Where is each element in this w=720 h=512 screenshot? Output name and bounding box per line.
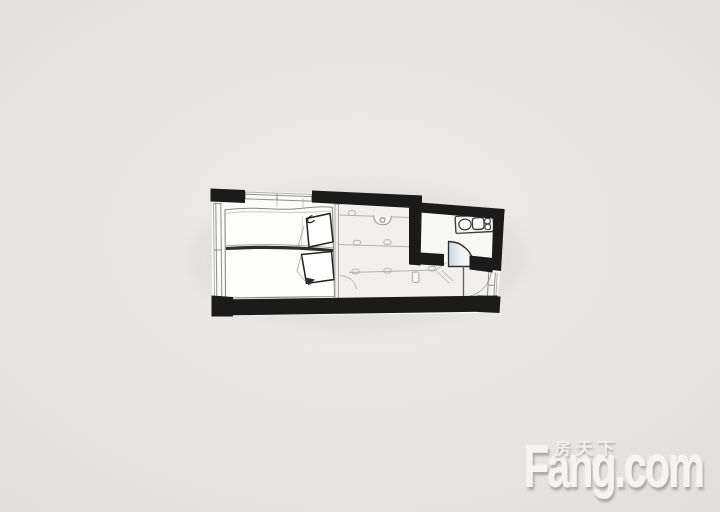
wall-bottom-left-corner	[212, 296, 234, 317]
double-bed	[225, 207, 335, 298]
wall-bath-bottom-right	[470, 256, 494, 273]
floorplan-photo: 房天下 Fang.com	[0, 0, 720, 512]
floor-plan	[0, 0, 720, 512]
wall-bath-bottom-left	[420, 253, 444, 267]
vanity-sink	[459, 219, 472, 230]
pillow-top	[307, 214, 334, 248]
wall-top-left-corner	[211, 189, 246, 204]
vanity-square-basin	[472, 217, 484, 229]
